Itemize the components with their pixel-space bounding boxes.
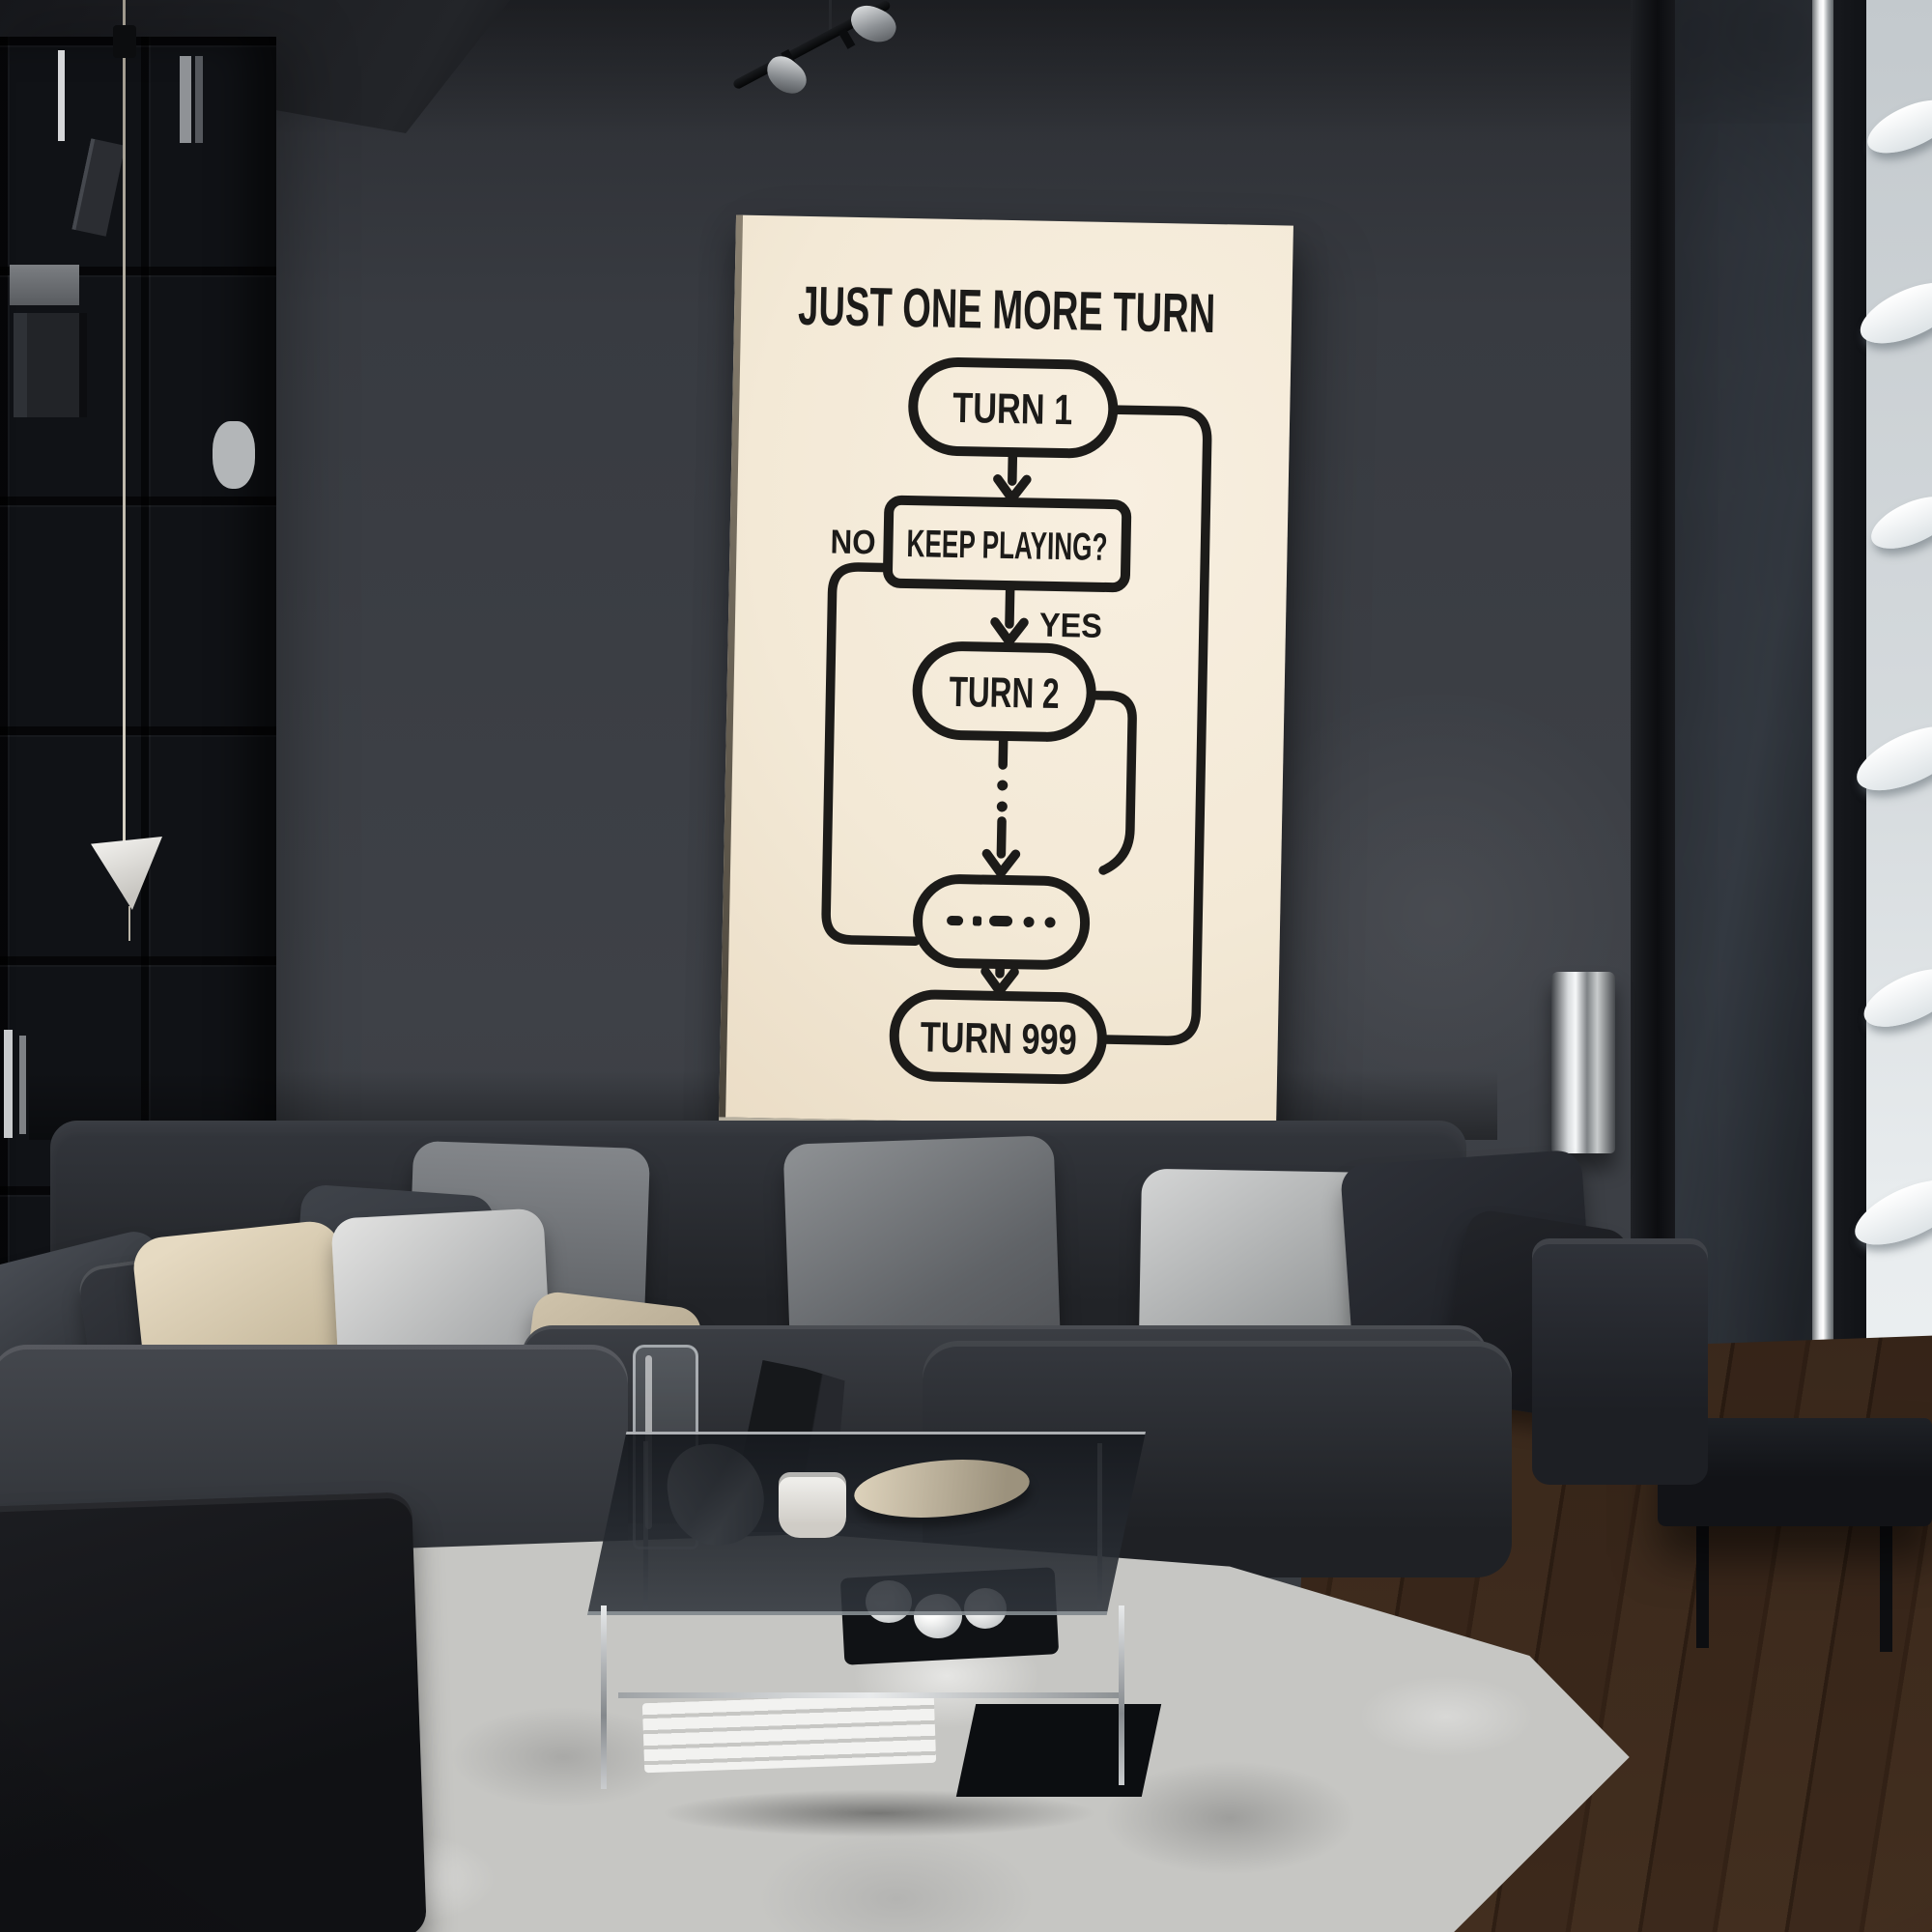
ellipsis-dot [973,916,981,925]
book-spine [180,56,191,143]
black-folio-lower [956,1704,1161,1797]
living-room-scene: JUST ONE MORE TURN TURN 1 KEEP PLAYING? … [0,0,1932,1932]
flowchart-poster: JUST ONE MORE TURN TURN 1 KEEP PLAYING? … [719,215,1293,1132]
table-leg [601,1605,607,1789]
edge-dotted-stub [1003,736,1004,765]
table-lower-shelf [618,1692,1121,1698]
magazine-stack [642,1693,936,1773]
edge-turn1-to-keepplaying [1012,452,1013,481]
node-turn-2-label: TURN 2 [949,668,1060,718]
shelf-vase [213,421,255,489]
glass-table-top [587,1432,1146,1615]
ellipsis-dot [1023,917,1034,927]
bench-leg [1696,1524,1709,1648]
edge-label-no: NO [830,523,876,561]
node-turn-1: TURN 1 [912,361,1114,454]
bench-leg [1880,1520,1892,1652]
book-spine [195,56,203,143]
edge-no-elbow [826,567,923,942]
node-keep-playing: KEEP PLAYING? [888,500,1127,588]
node-keep-playing-label: KEEP PLAYING? [906,523,1108,569]
white-cup [779,1472,846,1538]
edge-turn2-open-hook [1088,696,1132,871]
book-spine [58,50,65,141]
shelf-objects [10,265,79,305]
pendant-lamp-cord [123,0,126,842]
tilted-book [71,138,125,236]
pendant-lamp-cap [113,25,136,58]
edge-dotted-line [1001,821,1002,854]
dotted-edge-dot [997,780,1008,790]
ellipsis-dash [989,916,1012,926]
flowchart-art: JUST ONE MORE TURN TURN 1 KEEP PLAYING? … [719,215,1293,1128]
edge-label-yes: YES [1039,607,1103,645]
node-turn-1-label: TURN 1 [952,384,1073,434]
poster-title: JUST ONE MORE TURN [798,275,1216,345]
node-turn-2: TURN 2 [917,645,1093,737]
edge-keepplaying-to-turn2 [1009,585,1010,624]
ellipsis-dot [1044,917,1055,927]
node-ellipsis [917,878,1086,965]
book-spine [19,1036,26,1134]
book-row [14,313,87,417]
sofa-right-arm [1532,1238,1708,1485]
chrome-floor-vase [1551,972,1615,1153]
node-turn-999-label: TURN 999 [920,1013,1077,1064]
sofa-left-arm-foreground [0,1492,427,1932]
ellipsis-dash [947,916,963,925]
dotted-edge-dot [997,801,1008,811]
node-turn-999: TURN 999 [894,994,1103,1080]
table-leg [1119,1605,1124,1785]
book-spine [4,1030,13,1138]
pendant-lamp-tip [128,906,130,941]
